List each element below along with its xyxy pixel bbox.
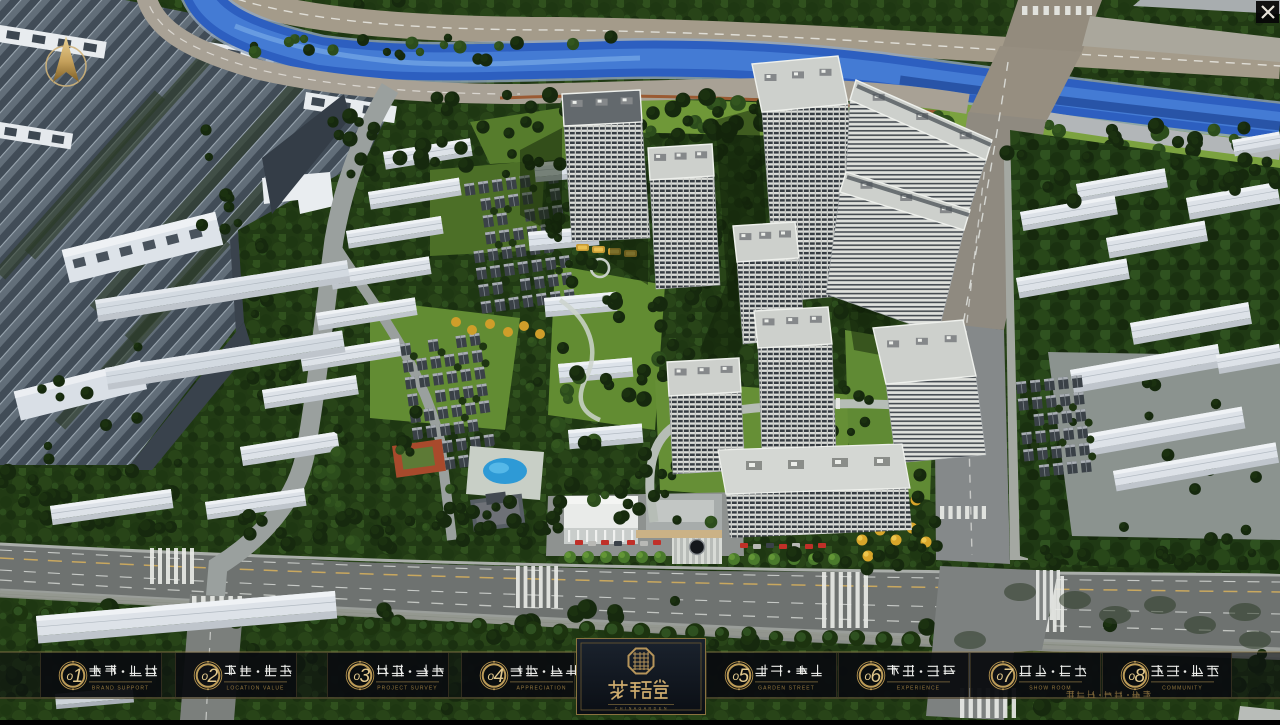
svg-text:5: 5 <box>739 666 750 687</box>
svg-text:LOCATION VALUE: LOCATION VALUE <box>226 686 284 692</box>
svg-text:EXPERIENCE: EXPERIENCE <box>897 686 940 692</box>
svg-text:3: 3 <box>360 666 371 687</box>
svg-text:6: 6 <box>871 666 882 687</box>
svg-text:7: 7 <box>1003 666 1015 687</box>
svg-text:8: 8 <box>1135 666 1146 687</box>
svg-text:PROJECT SURVEY: PROJECT SURVEY <box>377 686 438 692</box>
svg-text:GARDEN STREET: GARDEN STREET <box>758 686 815 692</box>
svg-text:C H I N A G A R D E N: C H I N A G A R D E N <box>615 707 668 711</box>
svg-text:COMMUNITY: COMMUNITY <box>1162 686 1203 692</box>
svg-text:APPRECIATION: APPRECIATION <box>516 686 566 692</box>
svg-text:4: 4 <box>494 666 505 687</box>
svg-text:1: 1 <box>73 666 84 687</box>
svg-text:BRAND SUPPORT: BRAND SUPPORT <box>92 686 149 692</box>
svg-text:SHOW ROOM: SHOW ROOM <box>1029 686 1071 692</box>
svg-text:2: 2 <box>207 666 219 687</box>
